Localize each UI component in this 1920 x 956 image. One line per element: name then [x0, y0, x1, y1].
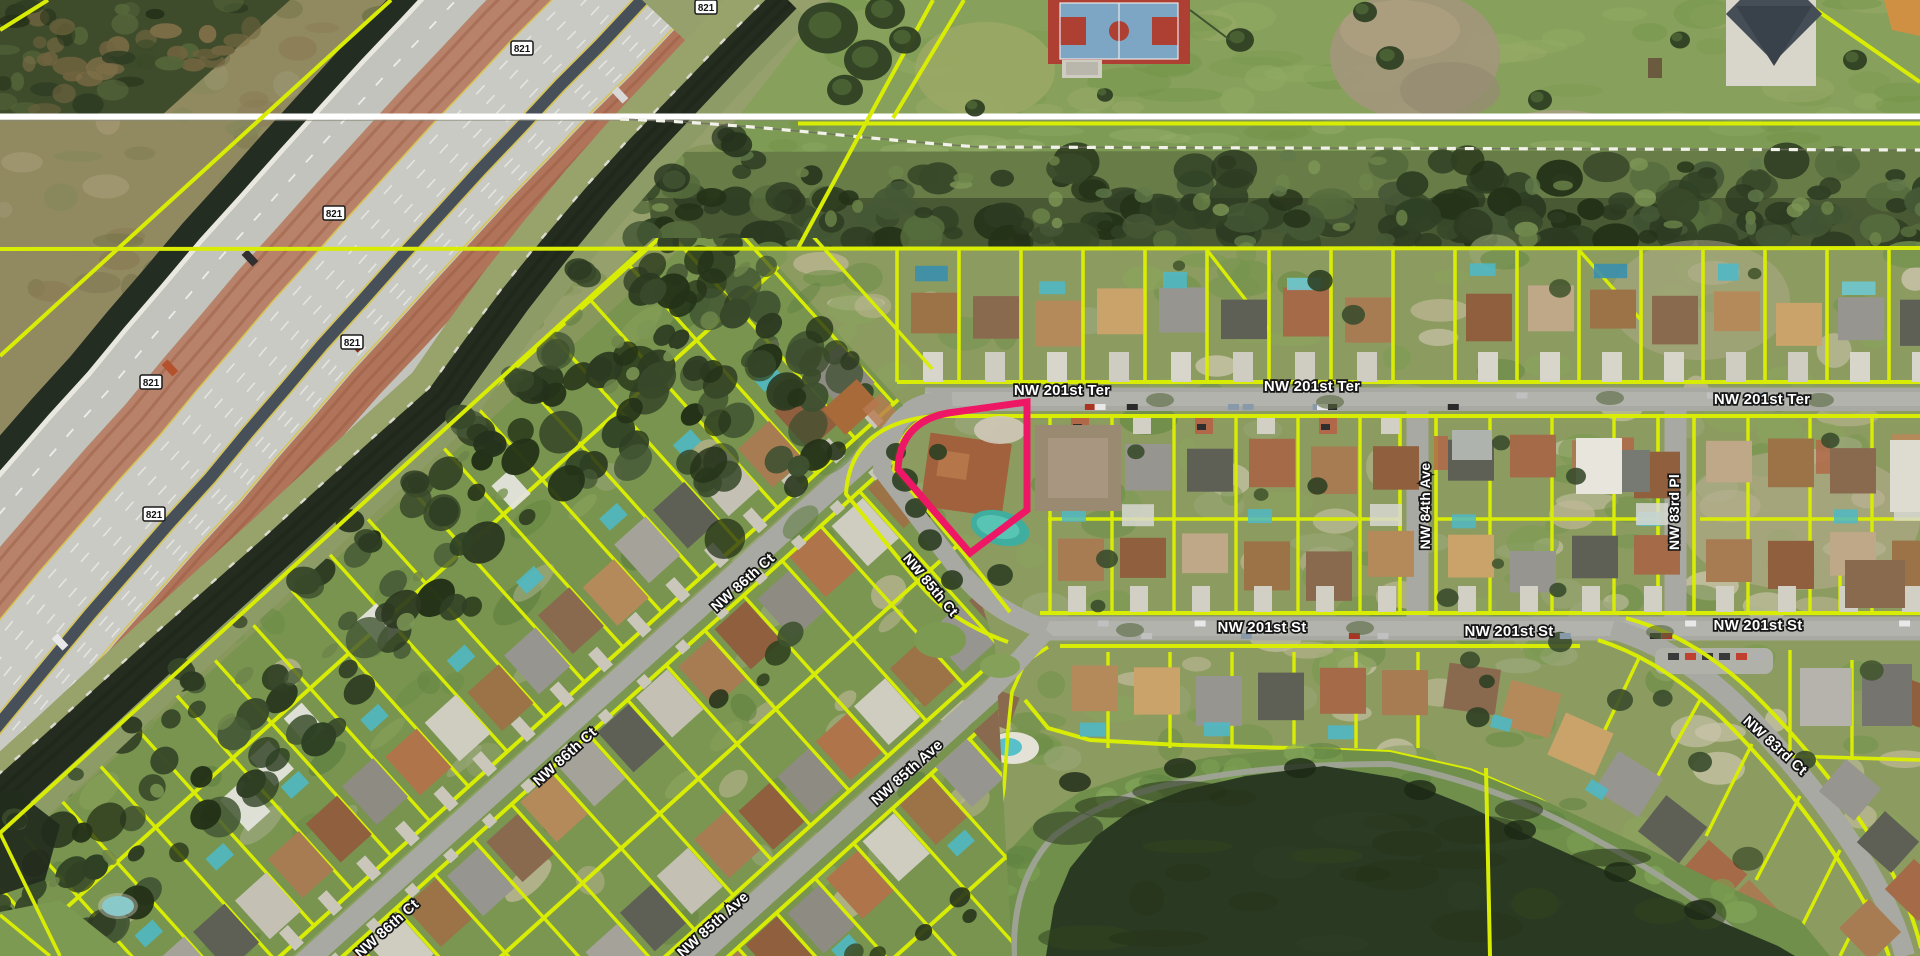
svg-text:821: 821 — [514, 44, 531, 55]
svg-text:NW 201st Ter: NW 201st Ter — [1714, 391, 1810, 408]
svg-text:821: 821 — [326, 209, 343, 220]
svg-text:821: 821 — [344, 338, 361, 349]
svg-text:NW 201st St: NW 201st St — [1465, 623, 1554, 640]
svg-text:821: 821 — [143, 378, 160, 389]
svg-text:NW 201st Ter: NW 201st Ter — [1264, 378, 1360, 395]
svg-text:NW 201st St: NW 201st St — [1714, 617, 1803, 634]
svg-text:NW 83rd Pl: NW 83rd Pl — [1666, 474, 1682, 550]
svg-text:NW 201st Ter: NW 201st Ter — [1014, 382, 1110, 399]
svg-text:821: 821 — [146, 510, 163, 521]
svg-text:NW 201st St: NW 201st St — [1218, 619, 1307, 636]
svg-text:821: 821 — [698, 3, 715, 14]
svg-text:NW 84th Ave: NW 84th Ave — [1417, 463, 1433, 550]
